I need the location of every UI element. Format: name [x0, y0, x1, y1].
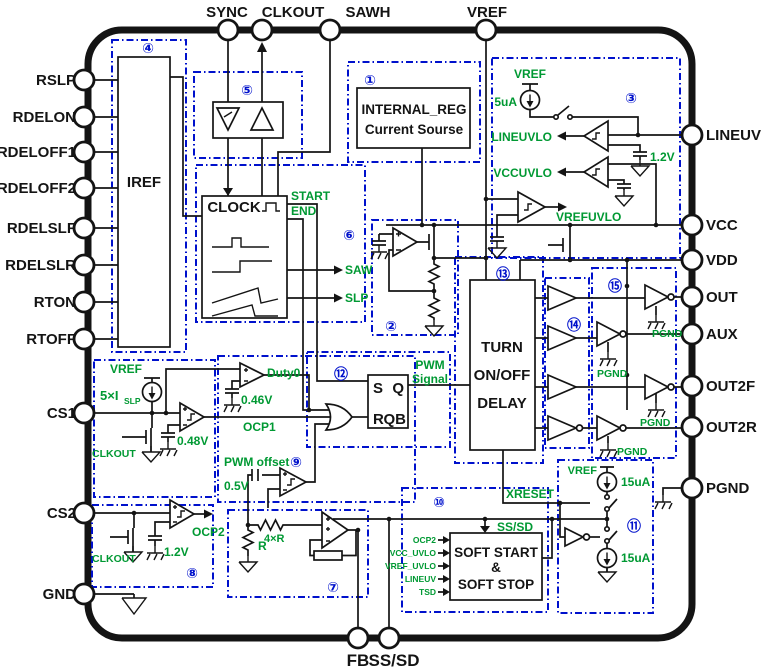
pin-sawh	[320, 20, 340, 40]
pin-label-out2r: OUT2R	[706, 419, 757, 436]
end-label: END	[291, 204, 317, 218]
ocp1-comparator-icon	[180, 403, 204, 431]
pin-label-clkout: CLKOUT	[262, 4, 325, 21]
pin-sync	[218, 20, 238, 40]
pin-label-rdelslf: RDELSLF	[7, 220, 76, 237]
ocp1-label: OCP1	[243, 420, 276, 434]
vrefuvlo-label: VREFUVLO	[556, 210, 621, 224]
ss-inverter-icon	[565, 528, 583, 546]
start-label: START	[291, 189, 331, 203]
block3-number: ③	[625, 90, 637, 106]
b3-vref-label: VREF	[514, 67, 546, 81]
block5-number: ⑤	[241, 82, 253, 98]
ocp2-ref-label: 1.2V	[164, 545, 189, 559]
pin-label-sawh: SAWH	[346, 4, 391, 21]
latch-qb: QB	[384, 411, 407, 428]
pin-label-cs1: CS1	[47, 405, 76, 422]
buffer-icon	[548, 286, 576, 310]
pwm-signal-line1: PWM	[415, 358, 444, 372]
pin-ssd	[379, 628, 399, 648]
pin-lineuv	[682, 125, 702, 145]
r4-label: 4×R	[264, 533, 285, 545]
pin-label-out2f: OUT2F	[706, 378, 755, 395]
pgnd-label-out: PGND	[652, 328, 683, 340]
islp-label: 5×I	[100, 388, 118, 403]
ssd-signal-label: SS/SD	[497, 520, 533, 534]
lineuvlo-label: LINEUVLO	[491, 130, 552, 144]
pin-rdelon	[74, 107, 94, 127]
pin-label-cs2: CS2	[47, 505, 76, 522]
block6-number: ⑥	[343, 227, 355, 243]
fb-opamp-icon	[322, 512, 348, 548]
pin-gnd	[74, 584, 94, 604]
pin-aux	[682, 324, 702, 344]
pin-label-vcc: VCC	[706, 217, 738, 234]
pin-out2r	[682, 417, 702, 437]
pgnd-label-out2r: PGND	[617, 446, 648, 458]
internal-reg-line2: Current Sourse	[365, 122, 464, 137]
xreset-label: XRESET	[506, 487, 555, 501]
current-source-5ua-icon	[521, 91, 540, 110]
cs2-clkout-label: CLKOUT	[92, 553, 136, 565]
pwm-offset-ref-label: 0.5V	[224, 479, 249, 493]
vccuvlo-label: VCCUVLO	[493, 166, 552, 180]
cs1-clkout-label: CLKOUT	[92, 448, 136, 460]
pin-label-rdelslr: RDELSLR	[5, 257, 76, 274]
turn-line3: DELAY	[477, 395, 526, 412]
pin-label-rdeloff1: RDELOFF1	[0, 144, 76, 161]
ic-block-diagram: SYNC CLKOUT SAWH VREF RSLP RDELON RDELOF…	[0, 0, 780, 672]
internal-reg-line1: INTERNAL_REG	[361, 102, 466, 117]
pin-label-pgnd: PGND	[706, 480, 750, 497]
internal-reg-block	[357, 88, 470, 148]
pin-out	[682, 287, 702, 307]
current-source-islp-icon	[143, 383, 162, 402]
pin-cs2	[74, 503, 94, 523]
pin-label-rdelon: RDELON	[13, 109, 76, 126]
pin-rdeloff2	[74, 178, 94, 198]
pin-label-rton: RTON	[34, 294, 76, 311]
latch-s: S	[373, 380, 383, 397]
block11-number: ⑪	[627, 518, 641, 534]
fb-feedback-box	[314, 551, 342, 560]
clock-title: CLOCK	[207, 199, 260, 216]
pin-label-rslp: RSLP	[36, 72, 76, 89]
duty0-comparator-icon	[240, 363, 264, 387]
switch-contact-icon	[568, 115, 572, 119]
pwm-offset-label: PWM offset	[224, 455, 289, 469]
pin-label-sync: SYNC	[206, 4, 248, 21]
block4-number: ④	[142, 40, 154, 56]
soft-in-lineuv: LINEUV	[405, 574, 437, 584]
pwm-offset-comparator-icon	[280, 468, 306, 496]
block12-number: ⑫	[334, 366, 348, 382]
pin-out2f	[682, 376, 702, 396]
vref-regulator-opamp-icon	[393, 228, 417, 256]
pin-cs1	[74, 403, 94, 423]
slp-label: SLP	[345, 291, 368, 305]
ocp2-label: OCP2	[192, 525, 225, 539]
vrefuvlo-comparator-icon	[518, 192, 545, 222]
turn-line2: ON/OFF	[474, 367, 531, 384]
current-source-15ua-bottom-icon	[598, 549, 617, 568]
soft-line3: SOFT STOP	[458, 577, 534, 592]
pin-vcc	[682, 215, 702, 235]
saw-label: SAW	[345, 263, 373, 277]
pin-label-rdeloff2: RDELOFF2	[0, 180, 76, 197]
inverter-icon	[548, 416, 576, 440]
inverter-bubble-icon	[577, 425, 583, 431]
block8-number: ⑧	[186, 565, 198, 581]
pin-label-rtoff: RTOFF	[26, 331, 76, 348]
ocp1-ref-label: 0.48V	[177, 434, 208, 448]
pgnd-label-out2f: PGND	[640, 417, 671, 429]
diagram-canvas: SYNC CLKOUT SAWH VREF RSLP RDELON RDELOF…	[0, 0, 780, 672]
or-gate-icon	[326, 404, 352, 430]
pin-rdeloff1	[74, 142, 94, 162]
turn-onoff-delay-block	[470, 280, 535, 450]
turn-line1: TURN	[481, 339, 523, 356]
current-source-15ua-top-icon	[598, 473, 617, 492]
duty0-ref-label: 0.46V	[241, 393, 272, 407]
block7-number: ⑦	[327, 579, 339, 595]
pin-rtoff	[74, 329, 94, 349]
iref-label: IREF	[127, 174, 161, 191]
b3-1v2-label: 1.2V	[650, 150, 675, 164]
pin-fb	[348, 628, 368, 648]
iref-block	[118, 57, 170, 347]
pin-label-out: OUT	[706, 289, 738, 306]
pgnd-label-aux: PGND	[597, 368, 628, 380]
pin-label-lineuv: LINEUV	[706, 127, 761, 144]
pin-rslp	[74, 70, 94, 90]
islp-subscript: SLP	[124, 396, 141, 406]
duty0-label: Duty0	[267, 366, 301, 380]
cs1-vref-label: VREF	[110, 362, 142, 376]
soft-in-vccuvlo: VCC_UVLO	[390, 548, 437, 558]
pin-rton	[74, 292, 94, 312]
b11-vref-label: VREF	[568, 465, 598, 477]
pin-vref	[476, 20, 496, 40]
pin-label-vdd: VDD	[706, 252, 738, 269]
block2-number: ②	[385, 318, 397, 334]
pin-label-ssd: SS/SD	[368, 651, 419, 670]
pin-label-gnd: GND	[43, 586, 77, 603]
switch-contact-icon	[554, 115, 558, 119]
pin-clkout	[252, 20, 272, 40]
block13-number: ⑬	[496, 266, 510, 282]
soft-in-vrefuvlo: VREF_UVLO	[385, 561, 436, 571]
out-driver-icon	[645, 285, 668, 309]
pwm-signal-line2: Signal	[412, 372, 448, 386]
block10-number: ⑩	[433, 494, 445, 510]
b11-15ua-bottom-label: 15uA	[621, 551, 651, 565]
pin-label-vref: VREF	[467, 4, 507, 21]
latch-q: Q	[392, 380, 404, 397]
pin-rdelslf	[74, 218, 94, 238]
block1-number: ①	[364, 72, 376, 88]
b11-15ua-top-label: 15uA	[621, 475, 651, 489]
b3-5ua-label: 5uA	[494, 95, 517, 109]
latch-r: R	[373, 411, 384, 428]
pin-label-aux: AUX	[706, 326, 738, 343]
pin-label-fb: FB	[347, 651, 370, 670]
pin-vdd	[682, 250, 702, 270]
cs1-block-border	[94, 360, 215, 497]
pin-pgnd	[682, 478, 702, 498]
soft-line1: SOFT START	[454, 545, 538, 560]
buffer-icon	[548, 375, 576, 399]
block15-number: ⑮	[608, 278, 622, 294]
block9-number: ⑨	[290, 454, 302, 470]
soft-in-tsd: TSD	[419, 587, 436, 597]
soft-line2: &	[491, 560, 501, 575]
pin-rdelslr	[74, 255, 94, 275]
soft-in-ocp2: OCP2	[413, 535, 436, 545]
block14-number: ⑭	[567, 317, 581, 333]
